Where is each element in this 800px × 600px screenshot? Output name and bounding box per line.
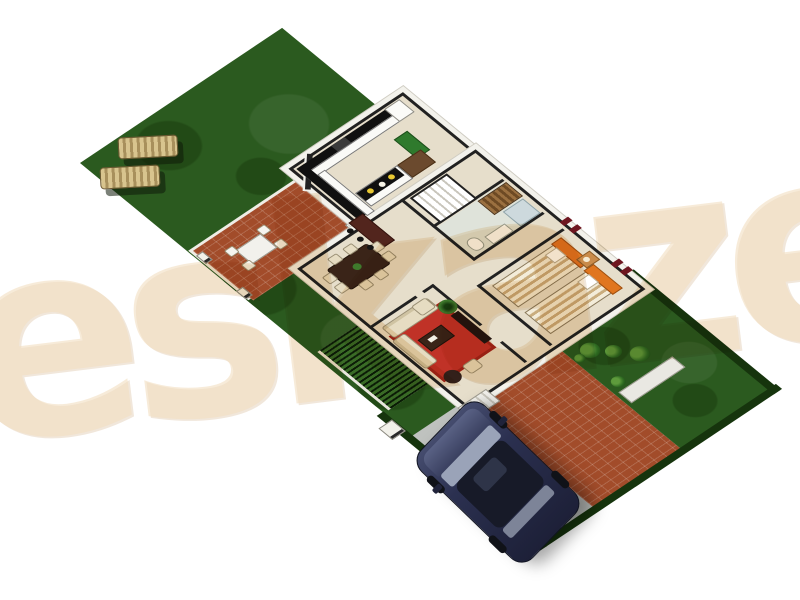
sun-lounger-1 — [117, 134, 178, 159]
wall-art-3 — [611, 259, 624, 268]
sun-lounger-2 — [99, 164, 160, 189]
property-plot — [80, 28, 745, 544]
wall-art-2 — [569, 224, 582, 233]
scene-canvas: eskaze — [0, 0, 800, 600]
wall-art-1 — [560, 217, 573, 226]
